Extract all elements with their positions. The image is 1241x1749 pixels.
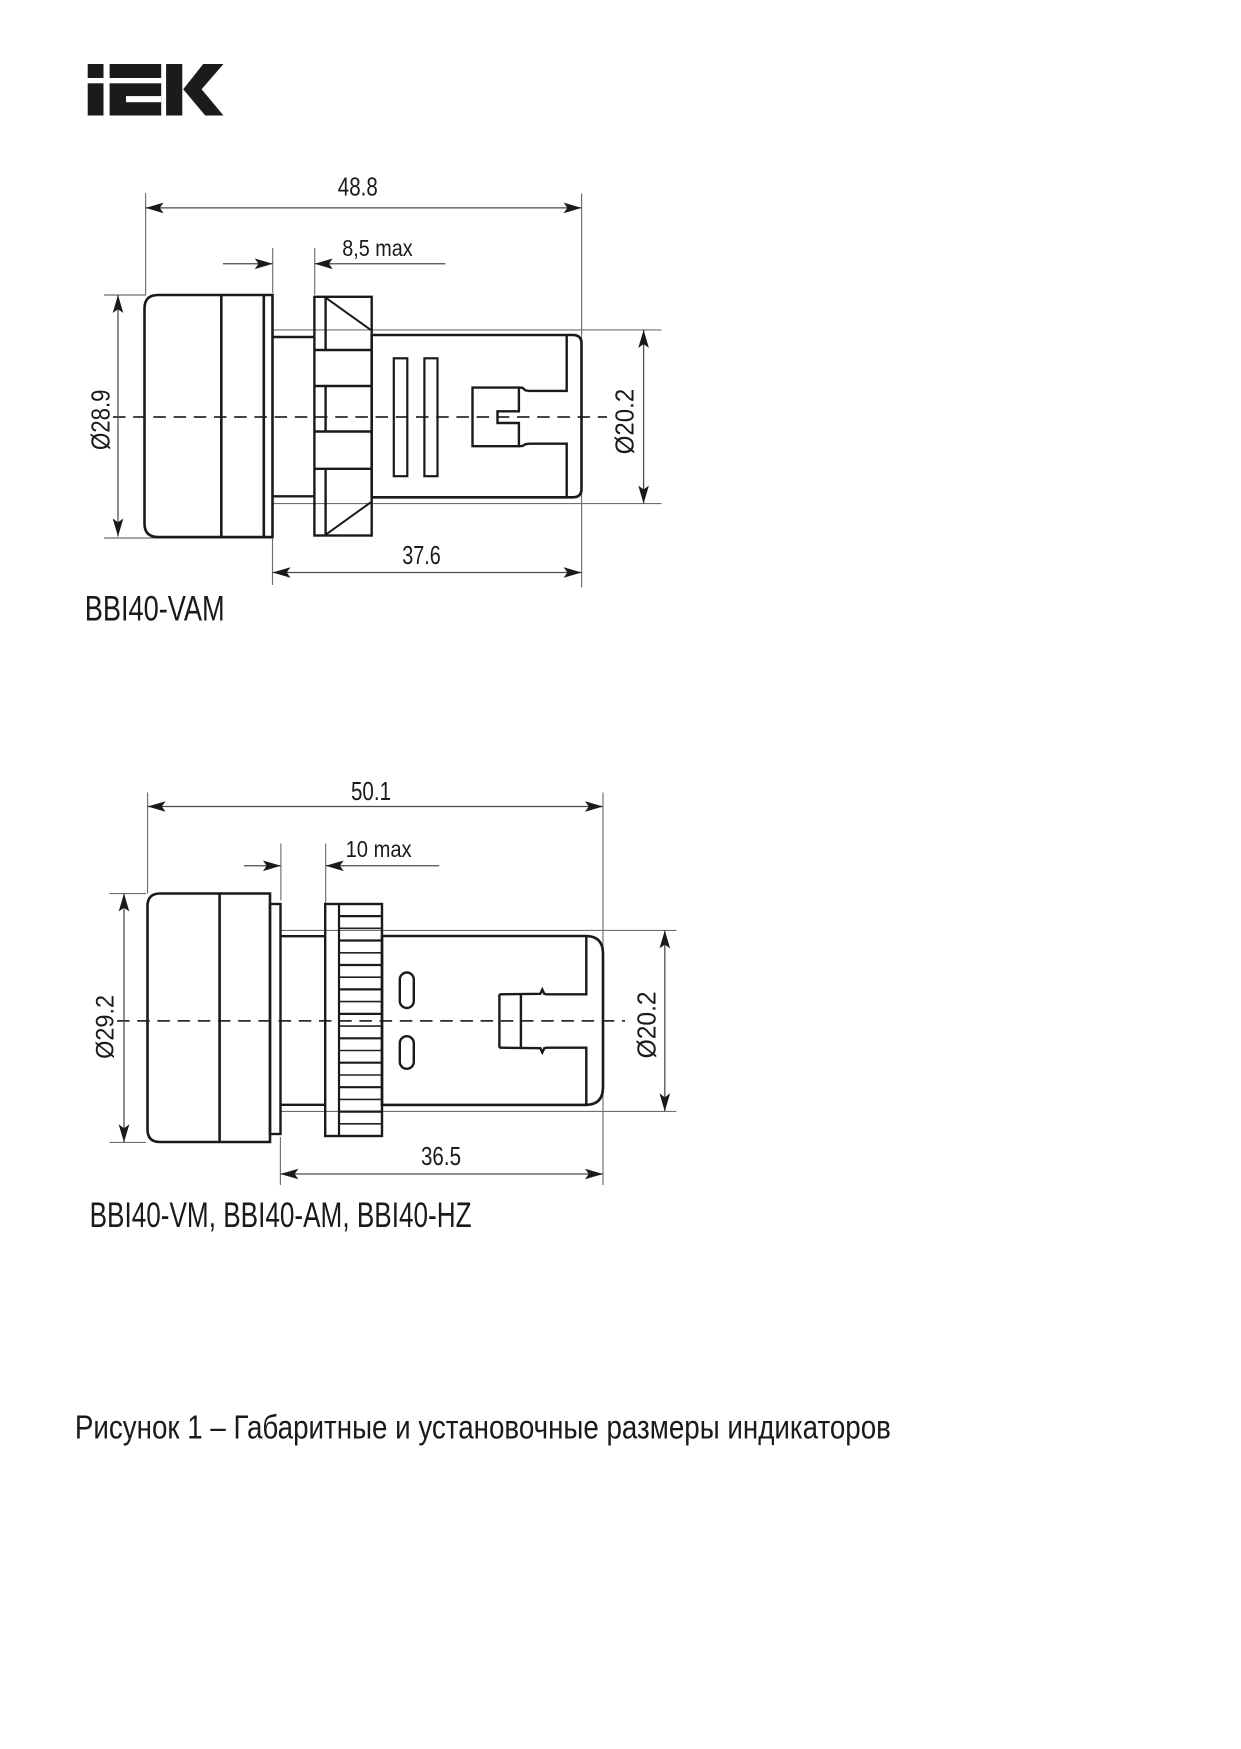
svg-text:Рисунок 1 – Габаритные и устан: Рисунок 1 – Габаритные и установочные ра… xyxy=(75,1409,891,1446)
svg-text:Ø28.9: Ø28.9 xyxy=(85,390,115,451)
svg-text:48.8: 48.8 xyxy=(338,173,378,201)
svg-text:50.1: 50.1 xyxy=(351,778,391,806)
svg-text:10 max: 10 max xyxy=(346,836,412,862)
svg-text:Ø29.2: Ø29.2 xyxy=(92,995,120,1059)
svg-text:37.6: 37.6 xyxy=(402,542,441,570)
svg-text:BBI40-VAM: BBI40-VAM xyxy=(85,590,225,629)
svg-text:Ø20.2: Ø20.2 xyxy=(632,991,662,1058)
svg-text:8,5 max: 8,5 max xyxy=(342,235,413,261)
svg-text:Ø20.2: Ø20.2 xyxy=(610,389,640,455)
svg-text:36.5: 36.5 xyxy=(421,1143,461,1171)
svg-text:BBI40-VM, BBI40-AM, BBI40-HZ: BBI40-VM, BBI40-AM, BBI40-HZ xyxy=(90,1196,472,1235)
